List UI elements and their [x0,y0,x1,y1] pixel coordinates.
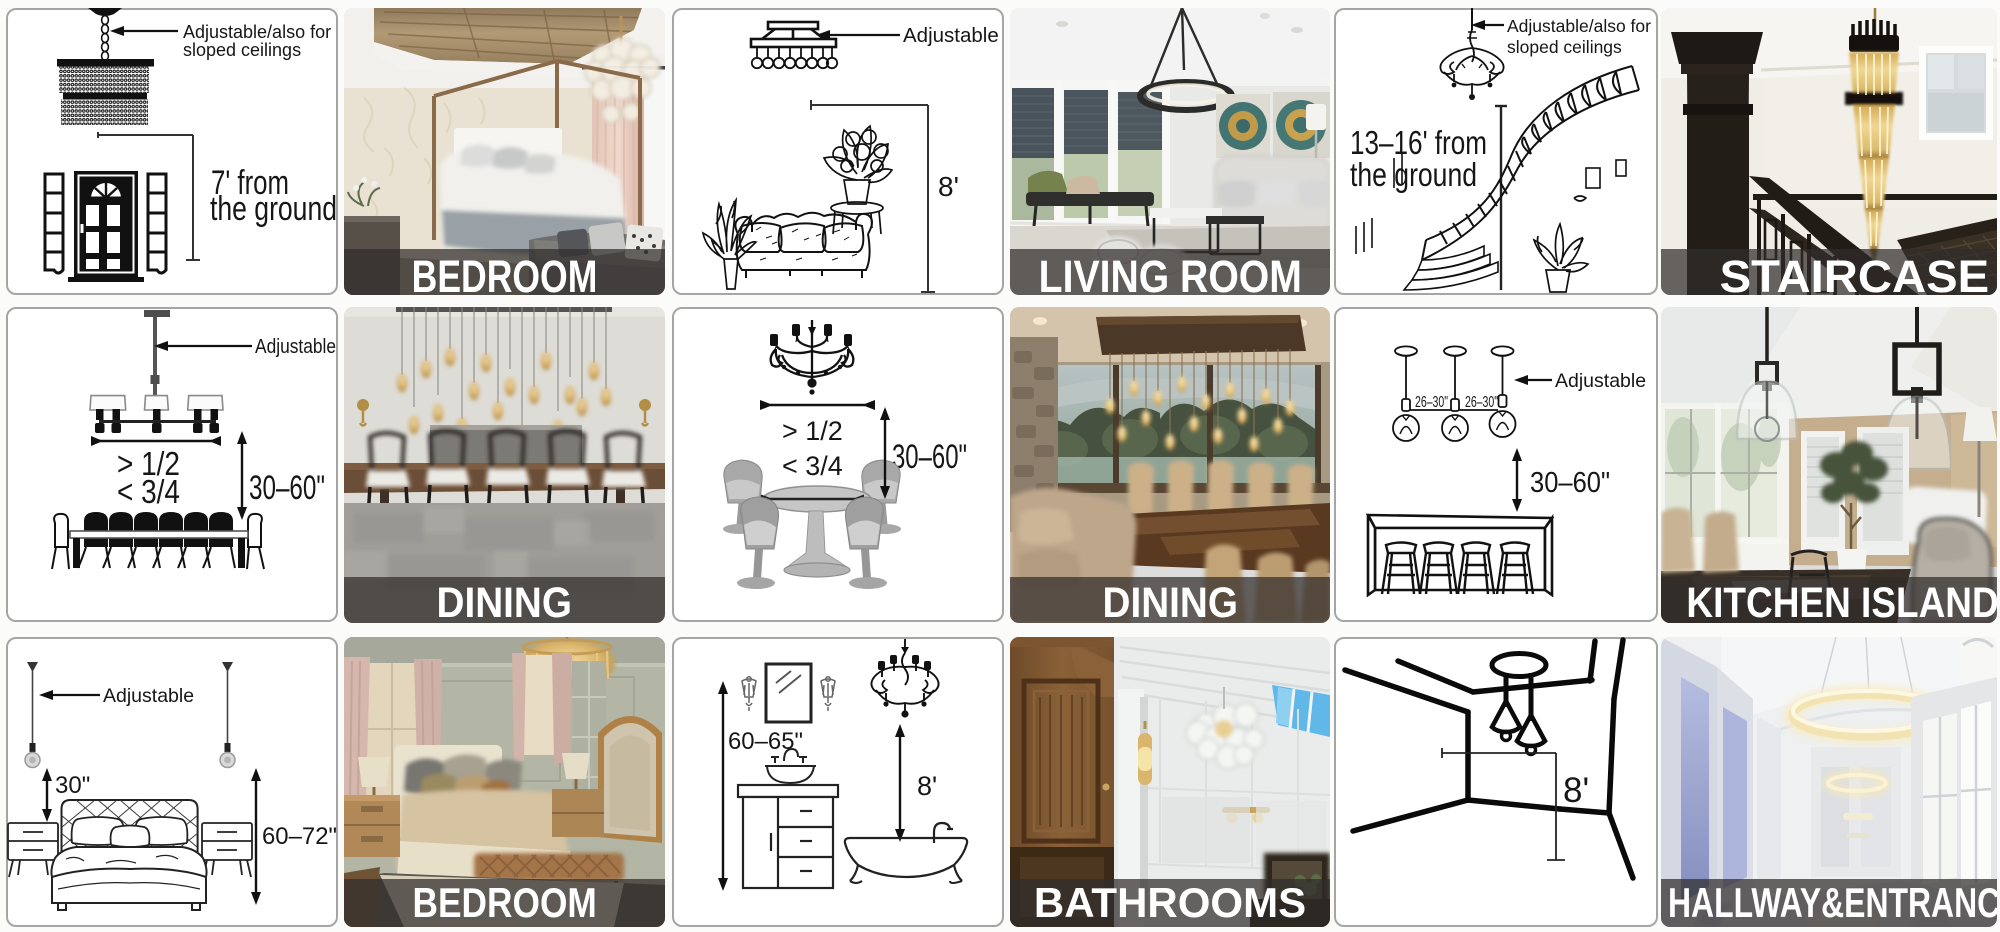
svg-text:Adjustable: Adjustable [1555,370,1646,392]
svg-text:sloped ceilings: sloped ceilings [1507,37,1622,57]
svg-text:8': 8' [938,171,959,202]
svg-text:26–30": 26–30" [1415,394,1448,411]
svg-text:Adjustable/also for: Adjustable/also for [1507,16,1651,36]
svg-text:60–72": 60–72" [262,823,337,850]
svg-text:8': 8' [917,771,937,801]
svg-text:30": 30" [55,772,90,799]
svg-text:the ground: the ground [210,190,337,228]
svg-text:Adjustable: Adjustable [903,24,999,47]
svg-text:the ground: the ground [1350,156,1477,193]
svg-text:Adjustable: Adjustable [255,336,336,358]
svg-text:< 3/4: < 3/4 [117,473,180,510]
svg-text:sloped ceilings: sloped ceilings [183,40,301,60]
svg-text:30–60": 30–60" [249,469,325,507]
svg-text:30–60": 30–60" [1530,467,1610,499]
svg-text:60–65": 60–65" [728,728,803,755]
svg-text:< 3/4: < 3/4 [782,451,843,481]
svg-text:Adjustable: Adjustable [103,685,194,707]
svg-text:8': 8' [1563,771,1589,810]
svg-text:30–60": 30–60" [892,438,967,476]
svg-text:> 1/2: > 1/2 [782,416,843,446]
svg-text:26–30": 26–30" [1465,394,1498,411]
svg-text:Adjustable/also for: Adjustable/also for [183,22,331,42]
